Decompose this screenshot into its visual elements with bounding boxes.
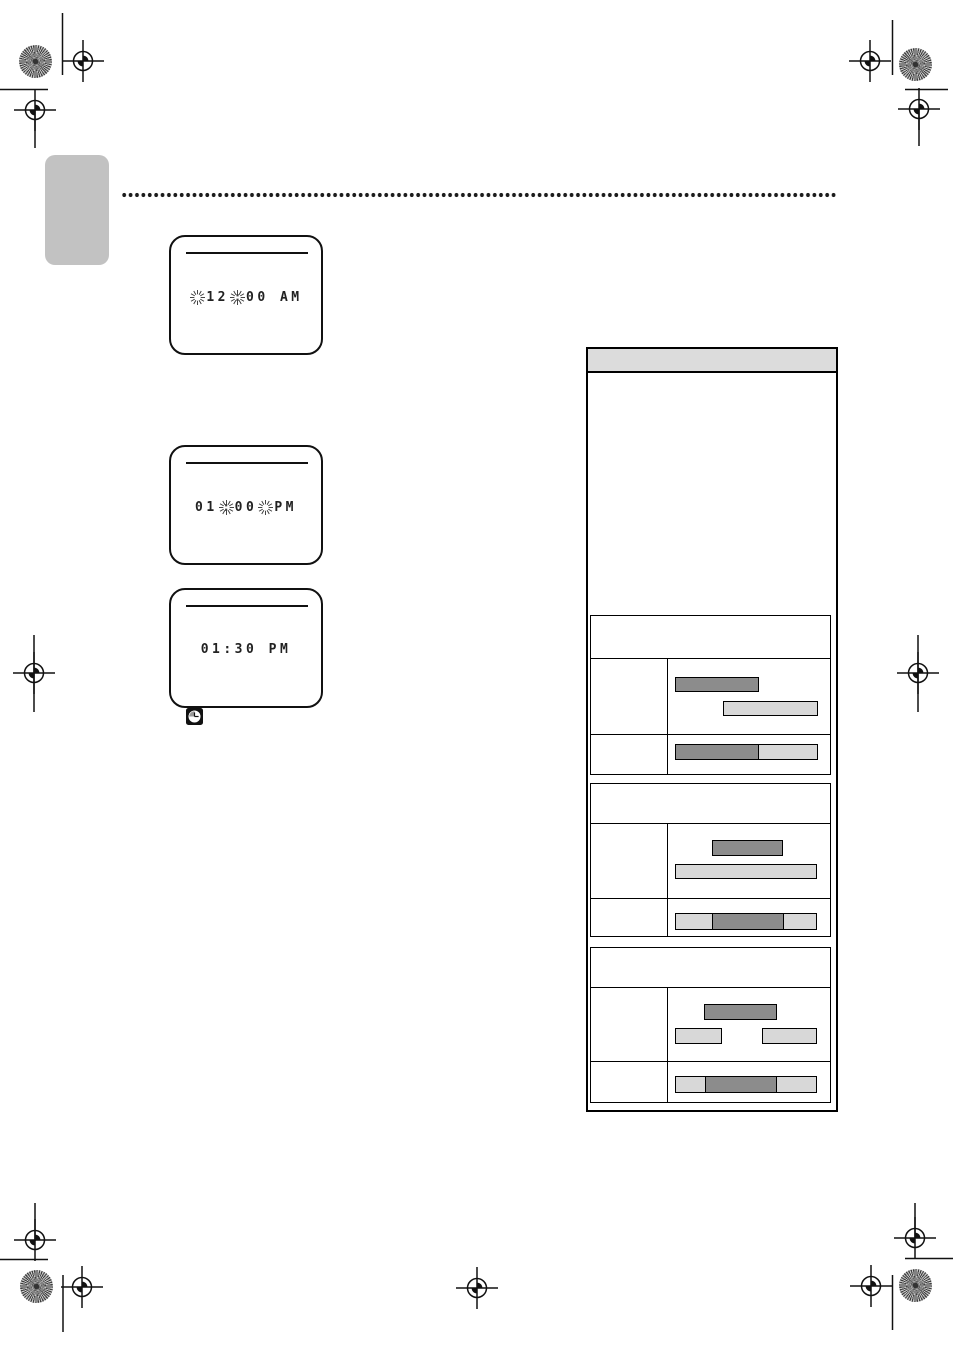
grid-line <box>667 823 668 936</box>
timer-diagram-3 <box>590 947 831 1103</box>
grid-line <box>591 898 830 899</box>
time-hour: 01 <box>195 500 218 515</box>
star-target-icon <box>899 1269 932 1302</box>
time-display: 12 : 00 AM <box>171 289 321 306</box>
document-page: 12 : 00 AM 01 : 00 PM 01:30 PM <box>0 0 954 1350</box>
timeline-bar-light <box>675 1028 722 1044</box>
blink-rays-icon <box>189 289 206 306</box>
blink-slot <box>257 499 274 516</box>
timer-diagram-1 <box>590 615 831 775</box>
time-full: 01:30 PM <box>201 642 292 657</box>
segment-light <box>676 914 712 929</box>
blink-slot <box>189 289 206 306</box>
segment-light <box>784 914 816 929</box>
segment-light <box>777 1077 816 1092</box>
segment-dark <box>676 745 758 759</box>
blink-slot: : <box>218 499 235 516</box>
blink-slot: : <box>229 289 246 306</box>
screen-top-line <box>186 605 308 607</box>
timer-diagram-2 <box>590 783 831 937</box>
segment-light <box>676 1077 705 1092</box>
timeline-bar-dark <box>675 677 759 692</box>
timeline-bar-light <box>723 701 818 716</box>
timeline-bar-light <box>762 1028 817 1044</box>
grid-line <box>591 1061 830 1062</box>
grid-line <box>591 734 830 735</box>
timeline-bar-combined <box>675 913 817 930</box>
screen-top-line <box>186 462 308 464</box>
star-target-icon <box>20 1270 53 1303</box>
segment-dark <box>712 914 784 929</box>
time-hour: 12 <box>206 290 229 305</box>
blink-rays-icon <box>218 499 235 516</box>
grid-line <box>667 987 668 1102</box>
timeline-bar-dark <box>712 840 783 856</box>
grid-line <box>667 658 668 774</box>
tv-screen-set-hour: 12 : 00 AM <box>169 235 323 355</box>
section-tab <box>45 155 109 265</box>
star-target-icon <box>899 48 932 81</box>
time-ampm: PM <box>274 500 297 515</box>
grid-line <box>591 987 830 988</box>
dotted-separator <box>121 192 836 198</box>
tv-screen-set-minutes: 01 : 00 PM <box>169 445 323 565</box>
time-display: 01 : 00 PM <box>171 499 321 516</box>
blink-rays-icon <box>257 499 274 516</box>
timeline-bar-combined <box>675 1076 817 1093</box>
star-target-icon <box>19 45 52 78</box>
screen-top-line <box>186 252 308 254</box>
time-minutes-ampm: 00 AM <box>246 290 303 305</box>
segment-dark <box>705 1077 777 1092</box>
blink-rays-icon <box>229 289 246 306</box>
segment-light <box>758 745 817 759</box>
timeline-bar-dark <box>704 1004 777 1020</box>
clock-icon <box>186 708 203 725</box>
tv-screen-time-set: 01:30 PM <box>169 588 323 708</box>
grid-line <box>591 658 830 659</box>
timeline-bar-combined <box>675 744 818 760</box>
time-minutes: 00 <box>235 500 258 515</box>
time-display: 01:30 PM <box>171 642 321 657</box>
grid-line <box>591 823 830 824</box>
info-table-header <box>588 349 836 373</box>
timeline-bar-light <box>675 864 817 879</box>
